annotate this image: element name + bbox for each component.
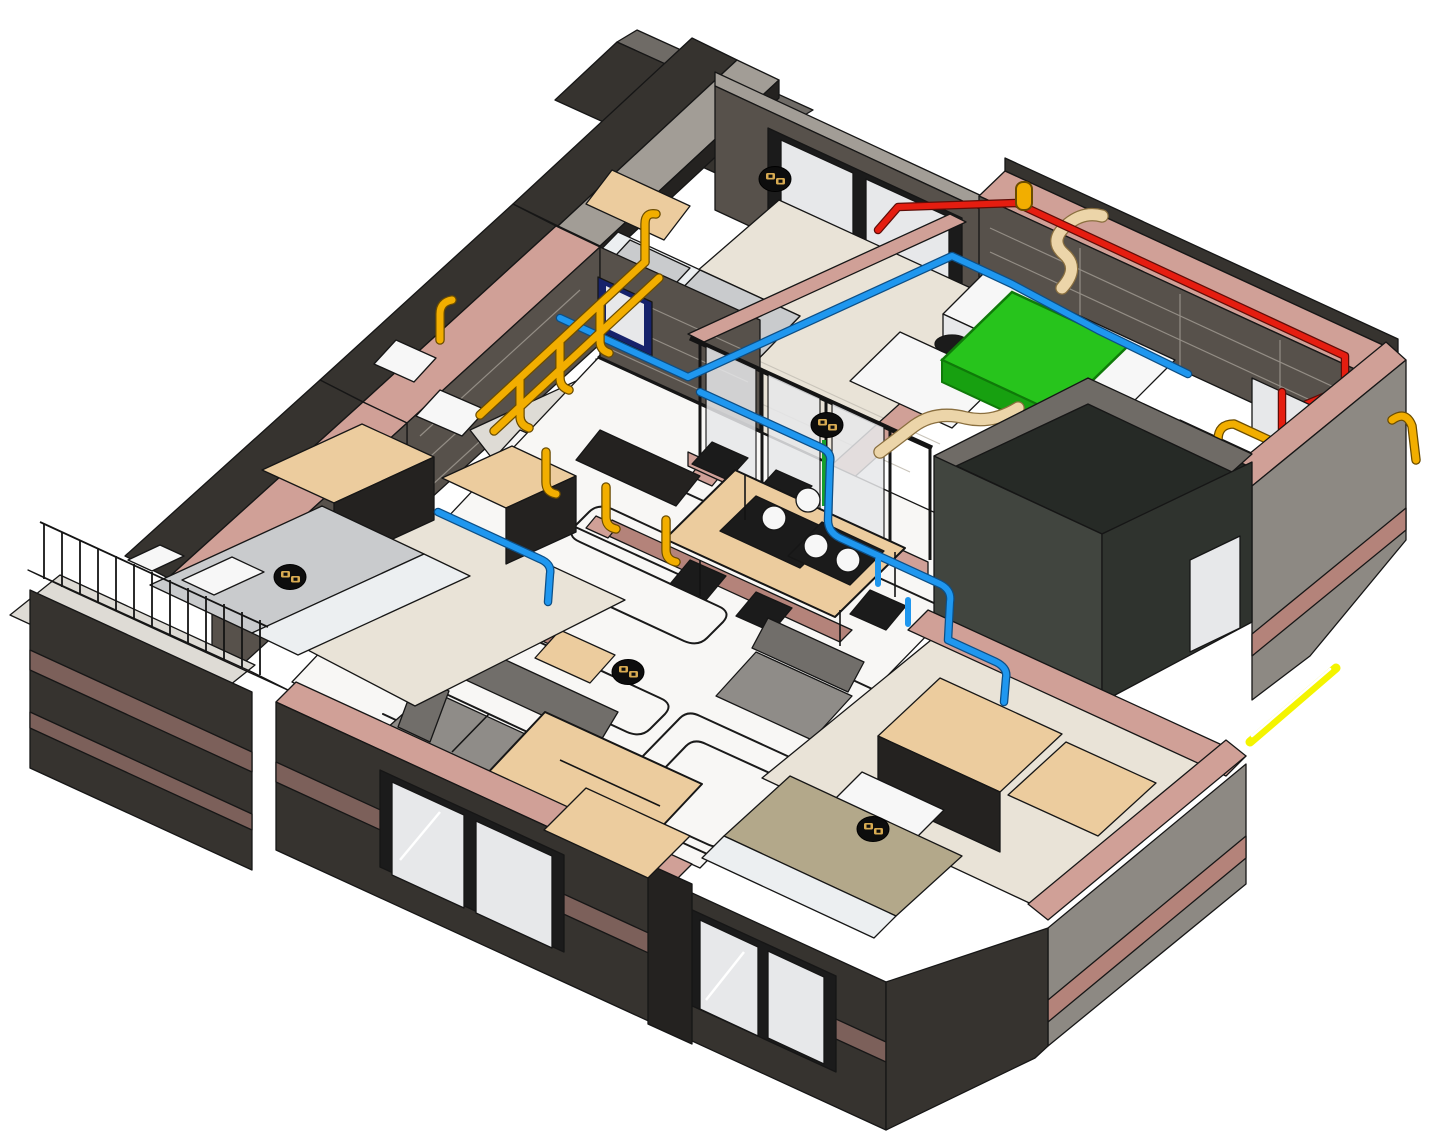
bim-viewport[interactable] <box>0 0 1440 1132</box>
conduit-riser <box>1016 182 1032 210</box>
power-socket-marker <box>811 413 843 438</box>
burner <box>804 534 828 558</box>
burner <box>796 488 820 512</box>
burner <box>762 506 786 530</box>
power-socket-marker <box>759 167 791 192</box>
power-socket-marker <box>612 660 644 685</box>
axonometric-model-canvas[interactable] <box>0 0 1440 1132</box>
wing-front-face <box>886 928 1048 1130</box>
corner-column <box>648 864 692 1044</box>
burner <box>836 548 860 572</box>
power-socket-marker <box>857 817 889 842</box>
power-socket-marker <box>274 565 306 590</box>
